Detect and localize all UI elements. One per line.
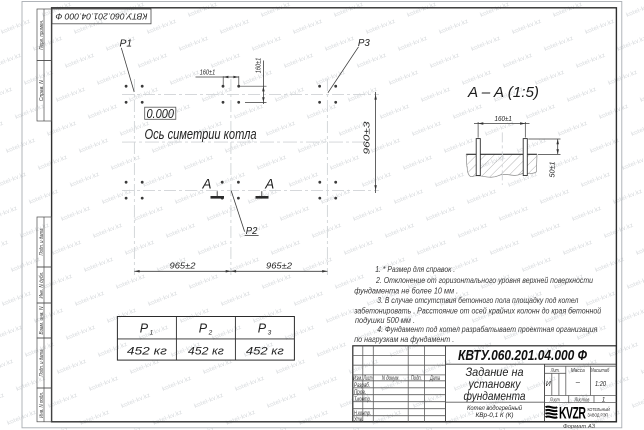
svg-text:A: A: [202, 177, 212, 192]
svg-text:Взам. инв. N: Взам. инв. N: [39, 306, 45, 334]
svg-text:P3: P3: [358, 37, 370, 49]
svg-text:P2: P2: [246, 225, 258, 237]
svg-text:забетонировать . Расстояние: забетонировать . Расстояние от осей край…: [353, 307, 601, 316]
svg-text:160±1: 160±1: [200, 68, 216, 77]
svg-text:Формат А3: Формат А3: [563, 424, 596, 430]
svg-text:Изм.: Изм.: [353, 376, 362, 382]
svg-text:Подп. и дата: Подп. и дата: [39, 228, 45, 255]
svg-text:Котел водогрейный: Котел водогрейный: [467, 405, 523, 412]
svg-text:452 кг: 452 кг: [127, 346, 167, 358]
svg-text:2: 2: [208, 330, 213, 337]
svg-text:Пров.: Пров.: [354, 390, 366, 396]
svg-text:Т.контр.: Т.контр.: [354, 397, 371, 403]
svg-text:Листов: Листов: [574, 397, 590, 403]
svg-text:Масштаб: Масштаб: [590, 368, 610, 374]
svg-text:Лист: Лист: [549, 397, 560, 403]
svg-text:1:20: 1:20: [595, 379, 606, 388]
svg-text:КВр-0,1 К (К): КВр-0,1 К (К): [476, 412, 514, 419]
svg-text:Н.контр.: Н.контр.: [354, 411, 371, 417]
svg-text:0.000: 0.000: [146, 106, 174, 121]
svg-text:Инв. N подл.: Инв. N подл.: [39, 392, 45, 418]
svg-text:Подп. и дата: Подп. и дата: [39, 349, 45, 376]
svg-text:Перв. примен.: Перв. примен.: [39, 20, 45, 50]
svg-text:Разраб.: Разраб.: [354, 383, 370, 389]
svg-text:по нагрузкам на фундамент .: по нагрузкам на фундамент .: [354, 335, 454, 344]
svg-text:3. В случае отсутствия бет: 3. В случае отсутствия бетонного пола пл…: [377, 296, 578, 305]
svg-text:160±1: 160±1: [254, 58, 263, 74]
svg-text:965±2: 965±2: [266, 261, 293, 270]
svg-text:3: 3: [268, 330, 272, 337]
svg-text:1: 1: [150, 330, 154, 337]
svg-text:подушки 500 мм .: подушки 500 мм .: [355, 316, 415, 325]
svg-text:1: 1: [602, 397, 605, 403]
svg-text:ЗАВОД РЭП: ЗАВОД РЭП: [588, 413, 609, 419]
svg-text:452 кг: 452 кг: [246, 346, 284, 358]
svg-text:160±1: 160±1: [494, 114, 512, 123]
svg-text:960±3: 960±3: [363, 120, 372, 154]
svg-text:A: A: [264, 177, 274, 192]
svg-text:4. Фундамент под котел раз: 4. Фундамент под котел разрабатывает про…: [377, 325, 598, 334]
svg-text:50±1: 50±1: [547, 162, 556, 178]
svg-text:P: P: [199, 322, 208, 336]
svg-text:P: P: [140, 322, 149, 336]
svg-text:P1: P1: [120, 37, 133, 49]
svg-text:Масса: Масса: [571, 368, 585, 374]
svg-text:N докум.: N докум.: [382, 376, 400, 382]
svg-text:452 кг: 452 кг: [188, 346, 224, 358]
svg-text:Лист: Лист: [363, 376, 373, 382]
svg-text:Ось симетрии котла: Ось симетрии котла: [145, 127, 257, 143]
svg-text:Дата: Дата: [429, 376, 440, 382]
svg-text:фундамента не более 10 мм: фундамента не более 10 мм .: [354, 286, 458, 295]
svg-text:КВТУ.060.201.04.000 Ф: КВТУ.060.201.04.000 Ф: [55, 11, 147, 21]
svg-text:A – A (1:5): A – A (1:5): [467, 84, 539, 101]
svg-text:Инв. N дубл.: Инв. N дубл.: [39, 272, 45, 299]
svg-text:–: –: [575, 377, 581, 386]
svg-text:КВТУ.060.201.04.000 Ф: КВТУ.060.201.04.000 Ф: [458, 347, 587, 364]
svg-text:2. Отклонение от горизонтал: 2. Отклонение от горизонтального уровня …: [375, 276, 593, 285]
svg-text:фундамента: фундамента: [464, 389, 526, 403]
svg-text:Подп.: Подп.: [411, 376, 422, 382]
svg-text:P: P: [258, 322, 267, 336]
svg-text:965±2: 965±2: [170, 261, 197, 270]
svg-text:Утв.: Утв.: [353, 417, 363, 423]
svg-text:Справ. N: Справ. N: [39, 80, 45, 101]
svg-text:KVZR: KVZR: [559, 404, 586, 422]
svg-text:Лит.: Лит.: [550, 368, 560, 374]
svg-text:1. * Размер для справок .: 1. * Размер для справок .: [375, 265, 455, 274]
